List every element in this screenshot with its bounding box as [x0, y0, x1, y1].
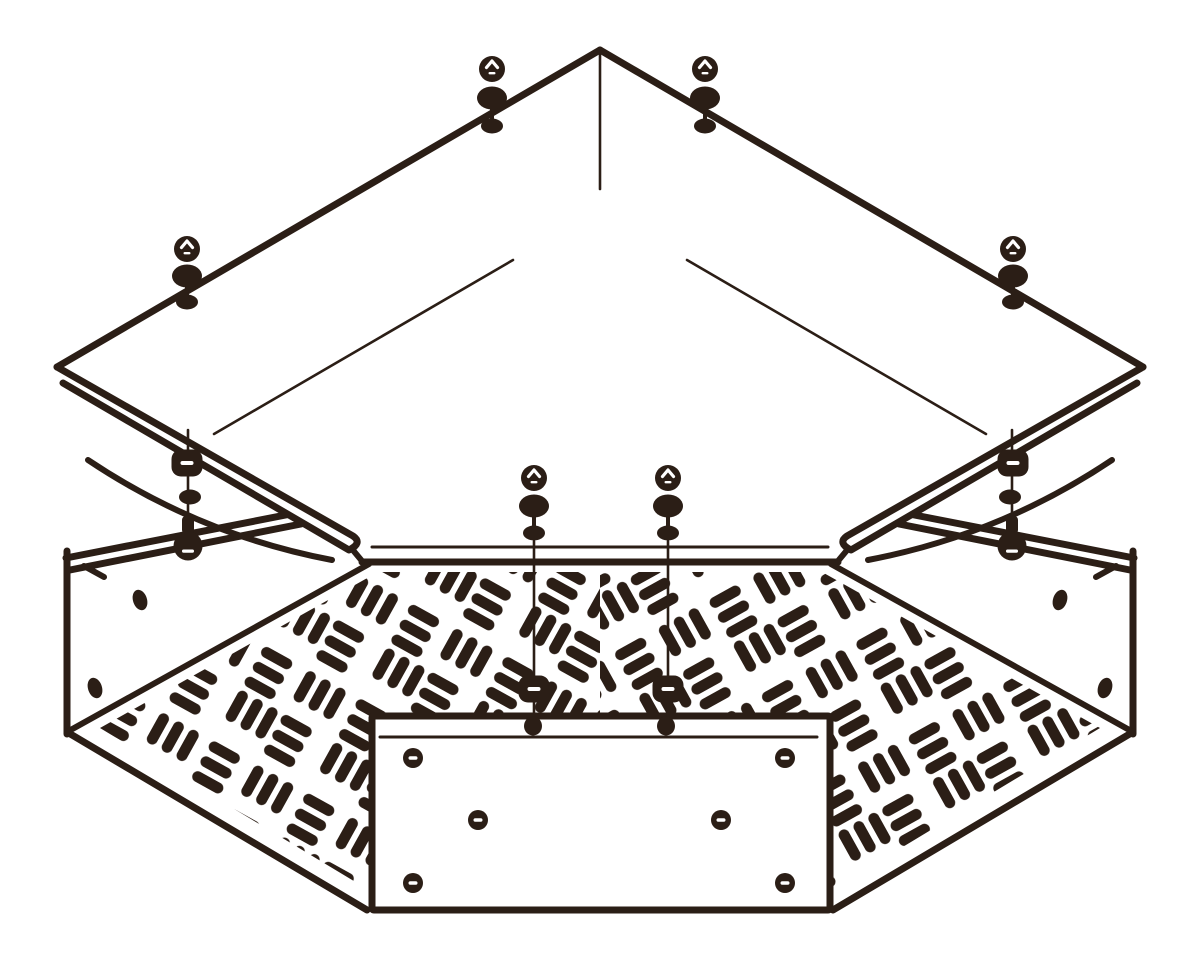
retainer-nut	[481, 119, 503, 134]
plate-stud-left	[524, 717, 542, 736]
screw-head-slot	[665, 481, 672, 483]
screw-head-slot	[1010, 252, 1017, 254]
floor-slotted-nut-left	[519, 676, 550, 703]
slotted-washer-slot	[1007, 461, 1020, 465]
rivet-slot	[717, 818, 726, 822]
lid-right-band-mask	[846, 373, 1140, 542]
floor-slotted-nut-right	[653, 676, 684, 703]
plate-rivet-bottom-right	[775, 873, 795, 893]
lid-right-fold-crease	[687, 260, 986, 434]
center-screw-left	[519, 465, 549, 541]
retainer-nut	[523, 526, 545, 541]
retainer-nut	[176, 295, 198, 310]
retainer-nut	[1002, 295, 1024, 310]
lid-upper-left-edge	[57, 50, 600, 367]
screw-head	[998, 532, 1027, 561]
access-plate	[372, 716, 830, 910]
rivet-slot	[781, 881, 790, 885]
screw-head	[174, 532, 203, 561]
rivet-slot	[474, 818, 483, 822]
retainer-nut	[657, 526, 679, 541]
screw-shank	[1006, 516, 1018, 534]
rivet-slot	[781, 756, 790, 760]
screw-head-slot	[182, 550, 194, 553]
right-corner-washer	[999, 490, 1021, 505]
plate-rivet-mid-right	[711, 810, 731, 830]
left-wall-hole-lower	[85, 676, 105, 700]
slotted-washer-slot	[181, 461, 194, 465]
left-corner-washer	[179, 490, 201, 505]
screw-head-slot	[531, 481, 538, 483]
plate-rivet-mid-left	[468, 810, 488, 830]
plate-rivet-top-right	[775, 748, 795, 768]
retainer-nut	[694, 119, 716, 134]
right-wall-hole-upper	[1050, 588, 1070, 612]
left-wall-hole-upper	[130, 588, 150, 612]
left-corner-slotted-washer	[172, 450, 203, 477]
plate-rivet-bottom-left	[403, 873, 423, 893]
plate-rivet-top-left	[403, 748, 423, 768]
slotted-washer-slot	[528, 687, 541, 691]
exploded-assembly-diagram	[0, 0, 1200, 964]
slotted-washer-slot	[662, 687, 675, 691]
plate-stud-right	[657, 717, 675, 736]
screw-head-slot	[702, 72, 709, 74]
center-screw-right	[653, 465, 683, 541]
lid-left-band-mask	[60, 373, 354, 542]
right-corner-slotted-washer	[998, 450, 1029, 477]
rivet-slot	[409, 881, 418, 885]
lid-screw-upper-right-1	[690, 56, 720, 134]
lid-left-fold-crease	[214, 260, 513, 434]
rivet-slot	[409, 756, 418, 760]
right-wall-hole-lower	[1095, 676, 1115, 700]
screw-shank	[182, 516, 194, 534]
screw-head-slot	[1006, 550, 1018, 553]
diagram-page	[0, 0, 1200, 964]
lid-upper-right-edge	[600, 50, 1143, 367]
screw-head-slot	[489, 72, 496, 74]
screw-head-slot	[184, 252, 191, 254]
